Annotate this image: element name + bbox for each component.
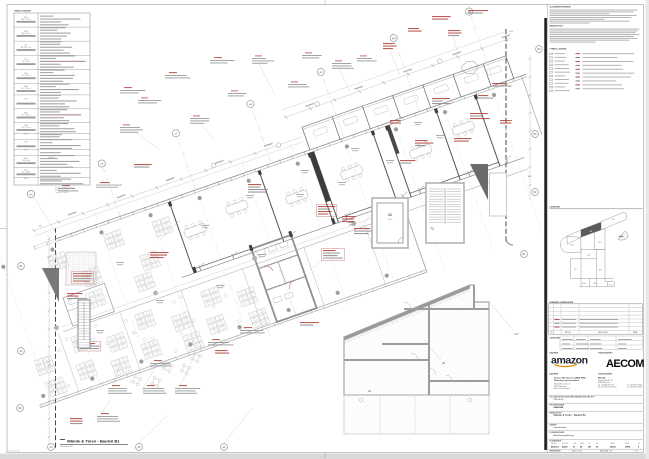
svg-text:LPH5: LPH5: [625, 447, 631, 449]
svg-text:Fax +49 089 45 23457: Fax +49 089 45 23457: [627, 387, 642, 389]
svg-text:EBENE: EBENE: [580, 443, 585, 445]
svg-text:W 4a: W 4a: [24, 73, 28, 75]
svg-text:W 8: W 8: [25, 141, 28, 143]
svg-text:BRANDSCHUTZ: BRANDSCHUTZ: [550, 25, 565, 28]
svg-text:A6: A6: [442, 361, 446, 365]
svg-text:BT7: BT7: [574, 269, 577, 271]
svg-text:SYMBOL LEGENDE: SYMBOL LEGENDE: [550, 49, 568, 51]
svg-text:W 9: W 9: [25, 149, 28, 151]
svg-text:TYP: TYP: [588, 443, 591, 445]
svg-text:Grundriss 1:100: Grundriss 1:100: [60, 446, 73, 448]
svg-text:WAND LEGENDE: WAND LEGENDE: [15, 10, 32, 13]
svg-text:29120: 29120: [610, 447, 616, 449]
svg-text:Tel +49 089 45 23456: Tel +49 089 45 23456: [628, 384, 643, 386]
svg-text:IDX: IDX: [638, 443, 640, 445]
svg-text:35 m²: 35 m²: [388, 218, 393, 221]
svg-text:T2: T2: [430, 227, 434, 231]
svg-text:Ausführungsplanung: Ausführungsplanung: [554, 434, 575, 437]
svg-text:292,00 m²: 292,00 m²: [554, 398, 564, 401]
svg-text:W 6a: W 6a: [24, 113, 28, 115]
svg-text:1:100: 1:100: [509, 31, 513, 33]
svg-text:RE: RE: [551, 332, 553, 334]
svg-text:PROJEKT: PROJEKT: [551, 443, 557, 445]
svg-text:B1a: B1a: [612, 219, 615, 221]
svg-text:Fax +49 (89) 231 03-555: Fax +49 (89) 231 03-555: [598, 387, 617, 389]
svg-text:B2: B2: [590, 231, 592, 233]
svg-text:F90 - 17.5 cm: F90 - 17.5 cm: [21, 19, 31, 21]
svg-text:BT3: BT3: [570, 245, 573, 247]
svg-text:ST1a: ST1a: [609, 285, 613, 287]
svg-text:GK - F90 - 12.5: GK - F90 - 12.5: [21, 47, 32, 49]
svg-text:BT5a: BT5a: [593, 283, 597, 285]
svg-text:GEZEICHNET: GEZEICHNET: [550, 338, 562, 340]
svg-text:ORTSTEIL: ORTSTEIL: [562, 443, 569, 445]
svg-text:W 3: W 3: [25, 59, 28, 61]
svg-text:GK - 15.0 cm: GK - 15.0 cm: [22, 115, 32, 117]
svg-text:FREIGABE / ÄNDERUNGEN: FREIGABE / ÄNDERUNGEN: [550, 301, 574, 304]
svg-text:W 11: W 11: [24, 169, 28, 171]
svg-text:VSG - Glas: VSG - Glas: [22, 160, 30, 162]
svg-text:PLANUNGSBÜRO: PLANUNGSBÜRO: [598, 352, 613, 355]
svg-text:A13: A13: [514, 332, 519, 336]
svg-text:W 1b: W 1b: [24, 31, 28, 33]
svg-text:W 4b: W 4b: [24, 86, 28, 88]
svg-text:W 10: W 10: [24, 158, 28, 160]
svg-text:F90 - 24.0 cm: F90 - 24.0 cm: [21, 33, 31, 35]
svg-text:GEZEICHNET: GEZEICHNET: [598, 332, 608, 334]
svg-text:W 5: W 5: [25, 99, 28, 101]
svg-text:AECOM: AECOM: [606, 358, 644, 370]
svg-text:PROJEKTNUMMER: PROJEKTNUMMER: [550, 404, 566, 406]
svg-text:GK - EI 30: GK - EI 30: [22, 61, 29, 63]
svg-text:BT6a: BT6a: [582, 283, 586, 285]
svg-text:A8: A8: [388, 213, 392, 217]
svg-text:Wände & Türen - Bauteil B1: Wände & Türen - Bauteil B1: [67, 439, 120, 444]
svg-text:GEWERK: GEWERK: [550, 424, 558, 426]
svg-text:AZKO: AZKO: [562, 446, 568, 449]
svg-text:Niederlassung Deutschland: Niederlassung Deutschland: [554, 379, 580, 382]
svg-text:PLANUNGSBÜRO: PLANUNGSBÜRO: [598, 372, 613, 375]
svg-text:BU013-2: BU013-2: [551, 447, 560, 449]
svg-text:1:100: 1:100: [38, 226, 42, 228]
svg-text:AECOM: AECOM: [598, 376, 605, 379]
svg-text:BT6: BT6: [599, 270, 602, 272]
svg-text:BT2: BT2: [587, 255, 590, 257]
svg-text:1 : 100: 1 : 100: [633, 450, 638, 452]
svg-text:LAGEPLAN: LAGEPLAN: [550, 206, 561, 209]
svg-text:W 2: W 2: [25, 45, 28, 47]
svg-text:Innenausbau: Innenausbau: [554, 427, 567, 429]
svg-text:GK - 17.5 cm: GK - 17.5 cm: [22, 127, 32, 129]
svg-text:ALLGEMEINE HINWEISE: ALLGEMEINE HINWEISE: [550, 6, 572, 9]
svg-text:BAUHERR: BAUHERR: [550, 372, 559, 375]
svg-text:GK - 10.0 cm: GK - 10.0 cm: [22, 75, 32, 77]
svg-text:W 12: W 12: [24, 178, 28, 180]
svg-text:GK - 12.5 cm: GK - 12.5 cm: [22, 88, 32, 90]
svg-text:60669308: 60669308: [554, 407, 565, 409]
svg-text:Wände & Türen - Bauteil B1: Wände & Türen - Bauteil B1: [554, 413, 587, 417]
svg-text:W 7: W 7: [25, 133, 28, 135]
svg-text:BT4: BT4: [598, 242, 601, 244]
svg-text:W 1a: W 1a: [24, 17, 28, 19]
svg-text:W 6b: W 6b: [24, 125, 28, 127]
svg-text:Bayern, Deutschland: Bayern, Deutschland: [554, 387, 570, 390]
